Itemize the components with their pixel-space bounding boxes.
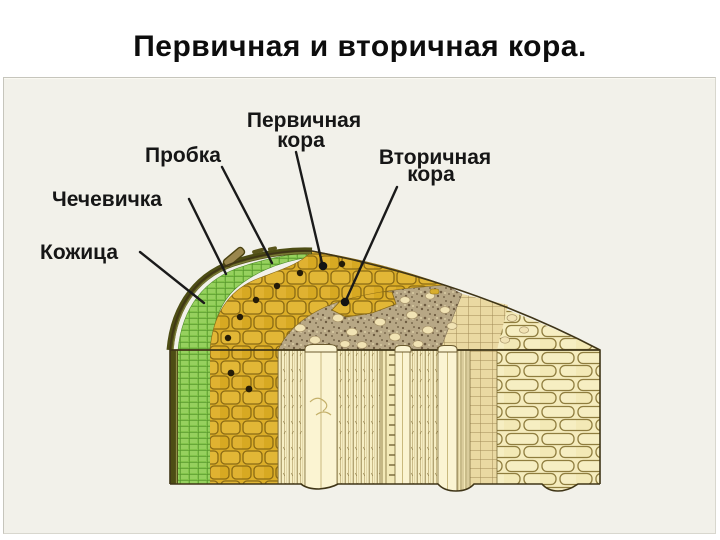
pointer-dot-secondary-cortex <box>341 298 350 307</box>
wavy-bottom-edge <box>170 484 600 491</box>
label-epidermis: Кожица <box>40 241 118 264</box>
leader-line-cork <box>222 167 272 263</box>
leader-line-epidermis <box>140 252 204 303</box>
diagram-labels: Первичная кора Пробка Вторичная кора Чеч… <box>40 109 491 264</box>
cambium-strip <box>470 350 497 492</box>
cork-strip <box>178 350 210 492</box>
label-primary-cortex-line2: кора <box>277 129 325 152</box>
wood-strip <box>497 350 600 492</box>
label-cork: Пробка <box>145 144 221 167</box>
front-face-columns <box>170 350 600 492</box>
pointer-dot-primary-cortex <box>319 262 328 271</box>
leader-line-primary-cortex <box>296 152 322 263</box>
label-lenticel: Чечевичка <box>52 188 162 211</box>
leader-line-lenticel <box>189 199 226 274</box>
primary-cortex-strip <box>210 350 278 492</box>
label-secondary-cortex-line2: кора <box>407 163 455 186</box>
stem-cross-section-illustration: Первичная кора Пробка Вторичная кора Чеч… <box>0 0 720 540</box>
